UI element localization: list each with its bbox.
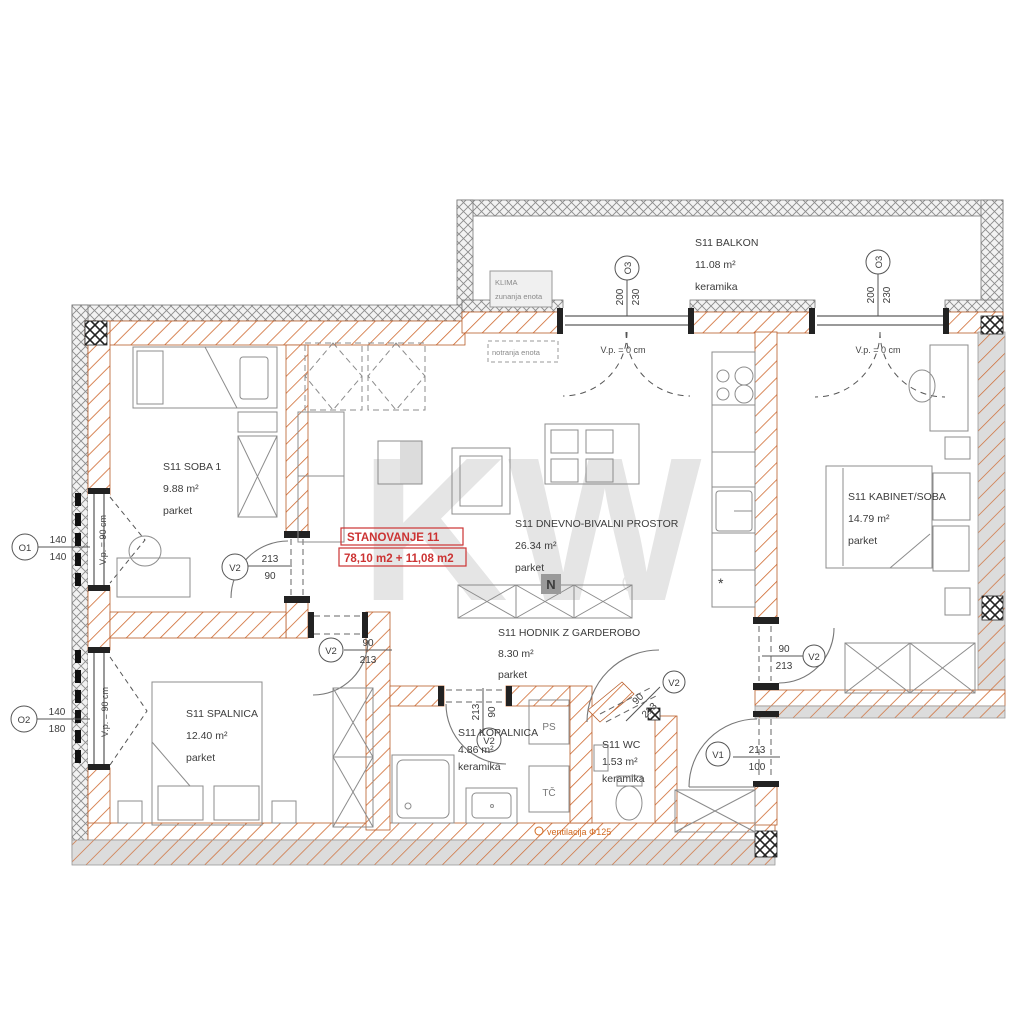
svg-text:parket: parket: [186, 752, 215, 764]
svg-text:O2: O2: [18, 715, 31, 726]
svg-text:1.53 m²: 1.53 m²: [602, 756, 638, 768]
svg-text:S11 SPALNICA: S11 SPALNICA: [186, 708, 258, 720]
svg-text:parket: parket: [163, 505, 192, 517]
wall-left-b: [88, 587, 110, 650]
svg-text:O1: O1: [19, 543, 32, 554]
svg-text:213: 213: [471, 703, 482, 720]
svg-text:180: 180: [49, 724, 66, 735]
svg-text:S11 BALKON: S11 BALKON: [695, 237, 758, 249]
wall-top: [85, 321, 465, 345]
svg-text:26.34 m²: 26.34 m²: [515, 540, 557, 552]
svg-text:140: 140: [49, 707, 66, 718]
wall-kabinet-bottom-outer: [755, 706, 1005, 718]
wall-bottom-outer: [72, 840, 775, 865]
svg-text:parket: parket: [848, 535, 877, 547]
svg-text:230: 230: [882, 286, 893, 303]
svg-text:140: 140: [50, 552, 67, 563]
svg-text:213: 213: [749, 745, 766, 756]
floorplan-page: KW ®: [0, 0, 1030, 1030]
svg-text:S11 HODNIK Z GARDEROBO: S11 HODNIK Z GARDEROBO: [498, 627, 640, 639]
svg-text:213: 213: [776, 661, 793, 672]
wall-soba1-living-lower: [286, 598, 308, 638]
svg-text:parket: parket: [515, 562, 544, 574]
svg-text:S11 KABINET/SOBA: S11 KABINET/SOBA: [848, 491, 946, 503]
svg-text:V2: V2: [229, 563, 241, 574]
svg-text:90: 90: [778, 644, 790, 655]
svg-text:9.88 m²: 9.88 m²: [163, 483, 199, 495]
coffee-table-shade: [400, 441, 422, 484]
vp90-o2: V.p. = 90 cm: [100, 687, 110, 737]
vp0-left: V.p. = 0 cm: [601, 345, 646, 355]
svg-text:O3: O3: [623, 262, 634, 275]
wall-living-kabinet: [755, 332, 777, 623]
svg-text:keramika: keramika: [602, 773, 645, 785]
svg-text:S11 KOPALNICA: S11 KOPALNICA: [458, 727, 538, 739]
svg-text:213: 213: [262, 554, 279, 565]
vp90-o1: V.p. = 90 cm: [98, 515, 108, 565]
apartment-name: STANOVANJE 11: [347, 532, 440, 544]
joint-entry: [755, 831, 777, 857]
wall-left-c: [88, 768, 110, 825]
svg-text:O3: O3: [874, 256, 885, 269]
svg-text:90: 90: [487, 706, 498, 718]
tc-label: TČ: [542, 786, 555, 799]
svg-text:notranja enota: notranja enota: [492, 348, 541, 357]
svg-text:200: 200: [866, 286, 877, 303]
joint-right-wall: [982, 596, 1003, 620]
klima-outdoor-box: KLIMA zunanja enota: [490, 271, 552, 307]
svg-text:V2: V2: [325, 646, 337, 657]
svg-text:12.40 m²: 12.40 m²: [186, 730, 228, 742]
wall-entry-right: [755, 783, 777, 825]
svg-text:140: 140: [50, 535, 67, 546]
svg-text:ventilacija Φ125: ventilacija Φ125: [547, 827, 611, 837]
svg-text:14.79 m²: 14.79 m²: [848, 513, 890, 525]
wall-bottom-inner: [88, 823, 775, 840]
north-badge: N: [541, 574, 561, 594]
balcony-wall-top: [457, 200, 1003, 216]
svg-text:213: 213: [360, 655, 377, 666]
balcony-wall-left: [457, 200, 473, 310]
svg-text:S11 DNEVNO-BIVALNI PROSTOR: S11 DNEVNO-BIVALNI PROSTOR: [515, 518, 679, 530]
svg-text:keramika: keramika: [458, 761, 501, 773]
wall-pier1: [462, 312, 563, 333]
svg-text:200: 200: [615, 288, 626, 305]
wall-wc-right: [655, 716, 677, 823]
svg-text:V2: V2: [808, 652, 820, 663]
kitchen-asterisk: *: [718, 575, 724, 591]
wall-soba1-living-upper: [286, 345, 308, 537]
insulation-top: [72, 305, 462, 321]
svg-text:KLIMA: KLIMA: [495, 278, 518, 287]
wall-right-kabinet: [978, 332, 1005, 690]
svg-text:4.86 m²: 4.86 m²: [458, 744, 494, 756]
svg-text:8.30 m²: 8.30 m²: [498, 648, 534, 660]
insulation-pier2: [690, 300, 815, 312]
svg-text:100: 100: [749, 762, 766, 773]
svg-text:11.08 m²: 11.08 m²: [695, 259, 736, 271]
joint-top-left: [85, 321, 107, 345]
ps-label: PS: [542, 722, 556, 733]
joint-balcony-right: [981, 316, 1003, 334]
svg-text:parket: parket: [498, 669, 527, 681]
insulation-pier3: [945, 300, 1003, 312]
svg-text:V1: V1: [712, 750, 724, 761]
svg-text:90: 90: [362, 638, 374, 649]
wall-kopalnica-top-e: [506, 686, 570, 706]
svg-text:V2: V2: [668, 678, 680, 689]
svg-text:S11 SOBA 1: S11 SOBA 1: [163, 461, 221, 473]
wall-kabinet-bottom: [755, 690, 1005, 706]
svg-text:N: N: [546, 577, 555, 592]
wall-left-a: [88, 321, 110, 495]
svg-text:zunanja enota: zunanja enota: [495, 292, 543, 301]
vp0-right: V.p. = 0 cm: [856, 345, 901, 355]
svg-text:keramika: keramika: [695, 281, 738, 293]
wall-soba1-spalnica: [110, 612, 286, 638]
wall-pier2: [690, 312, 815, 333]
floorplan-drawing: KW ®: [0, 0, 1030, 1030]
svg-text:S11 WC: S11 WC: [602, 739, 641, 751]
ventilation-note: ventilacija Φ125: [535, 827, 611, 837]
wall-kopalnica-top-w: [390, 686, 444, 706]
svg-text:90: 90: [264, 571, 276, 582]
apartment-area: 78,10 m2 + 11,08 m2: [344, 553, 454, 565]
svg-text:230: 230: [631, 288, 642, 305]
